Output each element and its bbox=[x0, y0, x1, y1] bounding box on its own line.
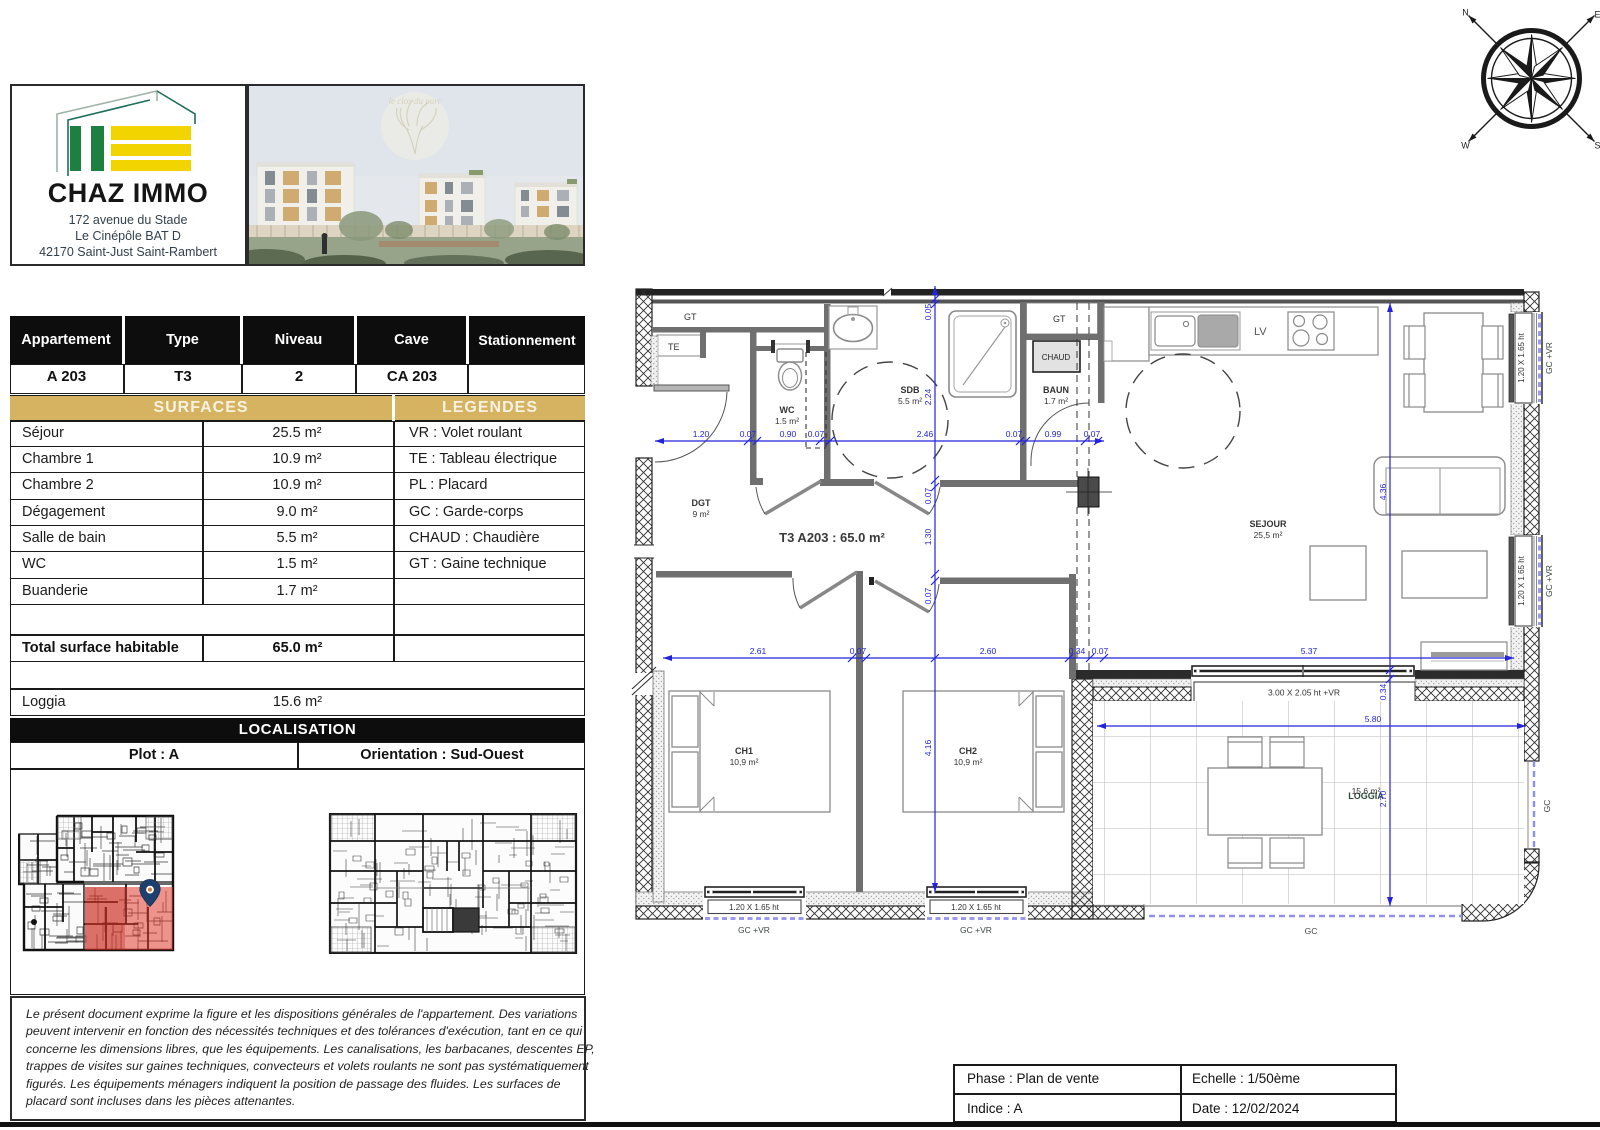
svg-text:1.30: 1.30 bbox=[923, 528, 933, 545]
svg-text:0.07: 0.07 bbox=[923, 587, 933, 604]
svg-text:GC +VR: GC +VR bbox=[960, 925, 992, 935]
svg-text:1.20: 1.20 bbox=[693, 429, 710, 439]
svg-text:T3 A203 : 65.0 m²: T3 A203 : 65.0 m² bbox=[779, 530, 885, 545]
svg-text:S: S bbox=[1594, 141, 1600, 151]
svg-text:2.24: 2.24 bbox=[923, 388, 933, 405]
svg-text:0.07: 0.07 bbox=[850, 646, 867, 656]
svg-text:CHAUD: CHAUD bbox=[1042, 353, 1071, 362]
svg-text:Le Cinépôle BAT D: Le Cinépôle BAT D bbox=[75, 229, 181, 243]
svg-text:GT: GT bbox=[1053, 314, 1066, 324]
svg-text:4.36: 4.36 bbox=[1378, 483, 1388, 500]
svg-text:2.60: 2.60 bbox=[980, 646, 997, 656]
svg-text:2.46: 2.46 bbox=[917, 429, 934, 439]
svg-text:9 m²: 9 m² bbox=[693, 509, 710, 519]
svg-text:2.61: 2.61 bbox=[750, 646, 767, 656]
svg-text:GC +VR: GC +VR bbox=[738, 925, 770, 935]
svg-text:0.07: 0.07 bbox=[923, 487, 933, 504]
svg-text:5.37: 5.37 bbox=[1301, 646, 1318, 656]
svg-text:10,9 m²: 10,9 m² bbox=[730, 757, 759, 767]
svg-text:4.16: 4.16 bbox=[923, 739, 933, 756]
svg-text:GC: GC bbox=[1305, 926, 1318, 936]
svg-text:1.20 X 1.65 ht: 1.20 X 1.65 ht bbox=[951, 903, 1002, 912]
svg-text:1.20 X 1.65 ht: 1.20 X 1.65 ht bbox=[729, 903, 780, 912]
svg-text:1.5 m²: 1.5 m² bbox=[775, 416, 799, 426]
svg-text:E: E bbox=[1594, 10, 1600, 20]
svg-text:0.07: 0.07 bbox=[1006, 429, 1023, 439]
svg-text:2.70: 2.70 bbox=[1378, 790, 1388, 807]
svg-text:N: N bbox=[1462, 8, 1469, 18]
svg-text:1.20 X 1.65 ht: 1.20 X 1.65 ht bbox=[1517, 332, 1526, 383]
svg-text:0.34: 0.34 bbox=[1378, 683, 1388, 700]
svg-text:0.90: 0.90 bbox=[780, 429, 797, 439]
svg-text:GC +VR: GC +VR bbox=[1544, 342, 1554, 374]
svg-text:0.99: 0.99 bbox=[1045, 429, 1062, 439]
svg-text:WC: WC bbox=[780, 405, 795, 415]
svg-text:GT: GT bbox=[684, 312, 697, 322]
svg-text:CH1: CH1 bbox=[735, 746, 753, 756]
svg-text:0.07: 0.07 bbox=[808, 429, 825, 439]
svg-text:0.34: 0.34 bbox=[1069, 646, 1086, 656]
svg-text:0.07: 0.07 bbox=[740, 429, 757, 439]
svg-text:CH2: CH2 bbox=[959, 746, 977, 756]
svg-text:W: W bbox=[1461, 141, 1470, 151]
svg-text:25,5 m²: 25,5 m² bbox=[1254, 530, 1283, 540]
svg-text:42170 Saint-Just Saint-Rambert: 42170 Saint-Just Saint-Rambert bbox=[39, 245, 217, 259]
svg-text:CHAZ IMMO: CHAZ IMMO bbox=[48, 178, 208, 208]
svg-text:SEJOUR: SEJOUR bbox=[1249, 519, 1287, 529]
svg-text:GC: GC bbox=[1542, 800, 1552, 813]
svg-text:10,9 m²: 10,9 m² bbox=[954, 757, 983, 767]
svg-text:1.7 m²: 1.7 m² bbox=[1044, 396, 1068, 406]
svg-text:DGT: DGT bbox=[692, 498, 712, 508]
svg-text:0.07: 0.07 bbox=[1092, 646, 1109, 656]
svg-text:1.20 X 1.65 ht: 1.20 X 1.65 ht bbox=[1517, 555, 1526, 606]
svg-text:172 avenue du Stade: 172 avenue du Stade bbox=[69, 213, 188, 227]
svg-text:0.05: 0.05 bbox=[923, 303, 933, 320]
svg-text:5.5 m²: 5.5 m² bbox=[898, 396, 922, 406]
svg-text:le clos du parc: le clos du parc bbox=[389, 96, 442, 106]
svg-text:GC +VR: GC +VR bbox=[1544, 565, 1554, 597]
svg-text:0.07: 0.07 bbox=[1084, 429, 1101, 439]
svg-text:5.80: 5.80 bbox=[1365, 714, 1382, 724]
svg-text:SDB: SDB bbox=[900, 385, 920, 395]
svg-text:LV: LV bbox=[1254, 326, 1267, 338]
svg-text:TE: TE bbox=[668, 342, 680, 352]
svg-text:BAUN: BAUN bbox=[1043, 385, 1069, 395]
svg-text:15,6 m²: 15,6 m² bbox=[1352, 786, 1381, 796]
svg-text:3.00 X 2.05 ht +VR: 3.00 X 2.05 ht +VR bbox=[1268, 688, 1340, 698]
